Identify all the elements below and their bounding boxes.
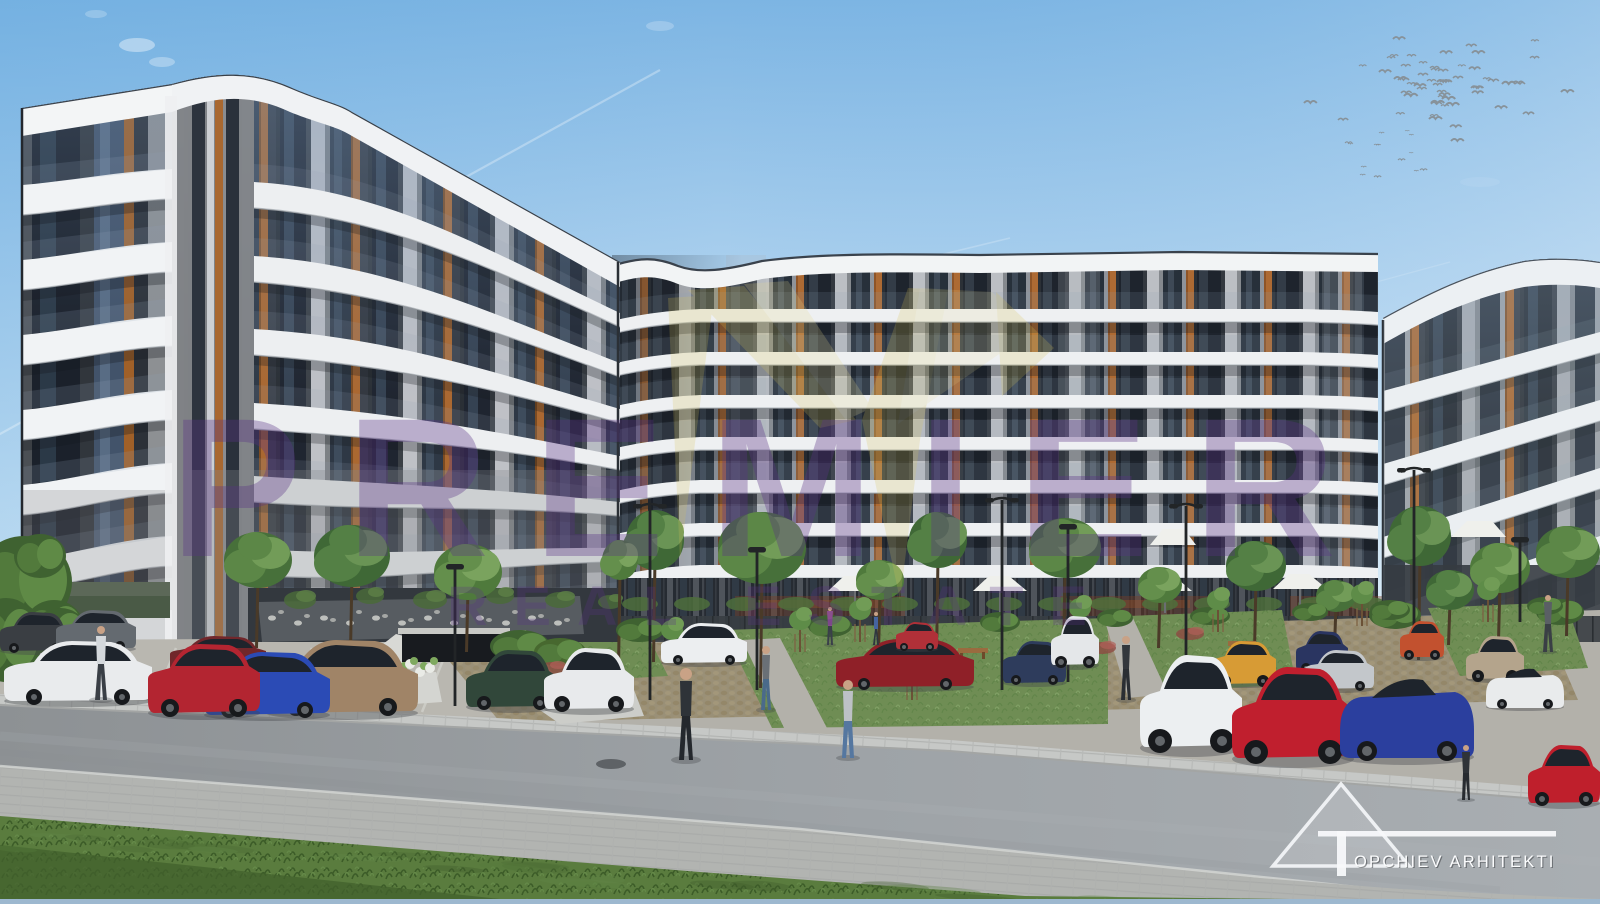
svg-text:PREMIER: PREMIER	[170, 377, 1380, 598]
svg-text:REAL ESTATE: REAL ESTATE	[447, 574, 1113, 637]
svg-text:OPCHIEV ARHITEKTI: OPCHIEV ARHITEKTI	[1354, 853, 1556, 871]
